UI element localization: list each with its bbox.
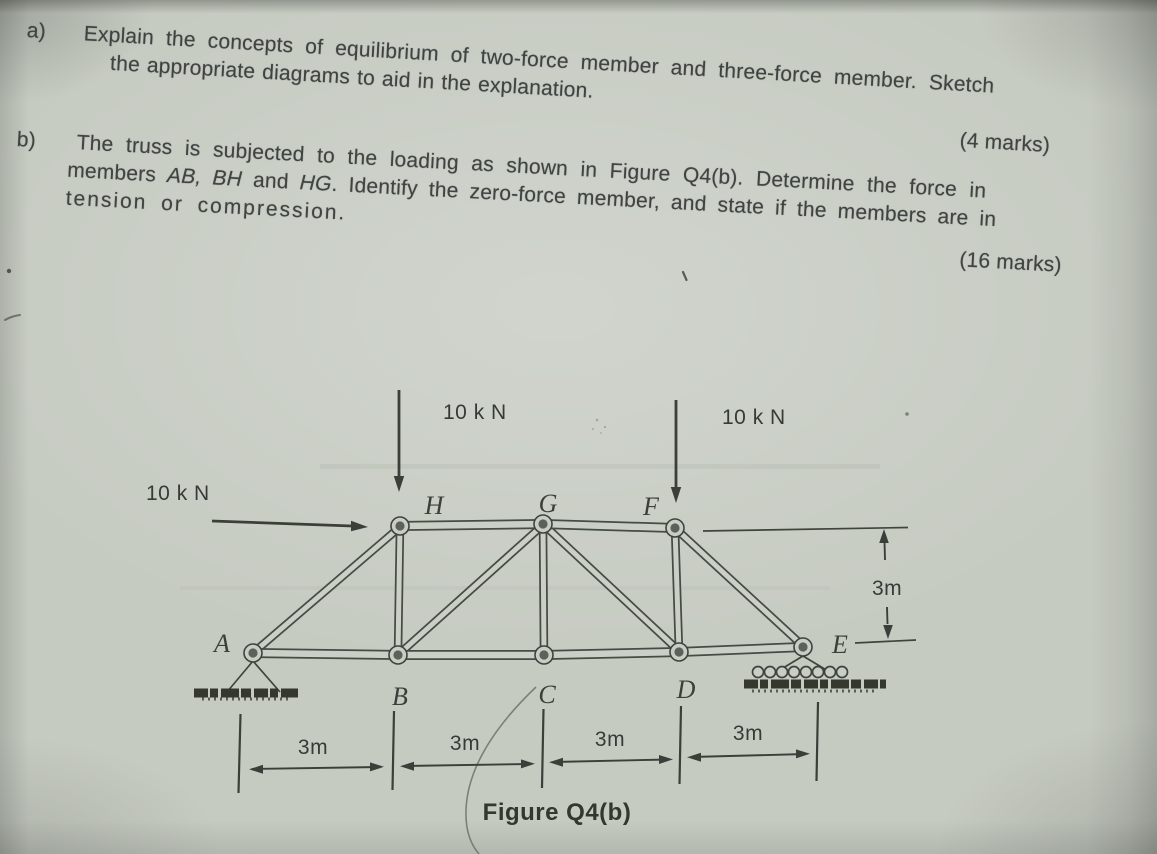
margin-dot bbox=[7, 269, 11, 273]
joint-H bbox=[391, 517, 409, 535]
dim-tick-E bbox=[817, 702, 819, 781]
stray-dot bbox=[905, 412, 909, 416]
bottom-extension-line bbox=[855, 640, 916, 643]
joint-F bbox=[666, 519, 684, 537]
load-arrow-at-F bbox=[671, 400, 681, 503]
node-label-D: D bbox=[676, 675, 696, 704]
node-label-B: B bbox=[392, 682, 408, 711]
roller-circles bbox=[753, 667, 848, 678]
load-label-at-F: 10 k N bbox=[722, 406, 786, 429]
joint-D bbox=[670, 643, 688, 661]
horizontal-load-label: 10 k N bbox=[146, 482, 210, 505]
figure-caption: Figure Q4(b) bbox=[483, 799, 632, 826]
load-arrow-at-H bbox=[394, 390, 404, 492]
margin-dash bbox=[5, 315, 20, 320]
load-label-at-H: 10 k N bbox=[443, 401, 507, 424]
down-arrowhead bbox=[394, 476, 404, 492]
span-dim-label-1: 3m bbox=[298, 736, 328, 759]
down-arrowhead bbox=[671, 487, 681, 503]
dim-tick-B bbox=[393, 711, 395, 790]
down-arrowhead bbox=[883, 625, 893, 639]
top-extension-line bbox=[703, 528, 908, 532]
node-label-F: F bbox=[642, 492, 660, 521]
paper-smudges bbox=[5, 269, 909, 590]
node-label-H: H bbox=[424, 491, 445, 520]
scan-arc bbox=[466, 687, 536, 854]
span-arrow-1 bbox=[249, 762, 384, 773]
span-dim-label-2: 3m bbox=[450, 732, 480, 755]
exam-paper-photo: a) Explain the concepts of equilibrium o… bbox=[0, 0, 1157, 854]
joint-B bbox=[389, 646, 407, 664]
joint-A bbox=[244, 644, 262, 662]
node-label-G: G bbox=[539, 489, 558, 518]
node-label-A: A bbox=[212, 629, 230, 658]
span-dim-label-3: 3m bbox=[595, 728, 625, 751]
span-dimensions: 3m 3m 3m 3m bbox=[239, 702, 819, 793]
node-label-E: E bbox=[831, 630, 848, 659]
span-dim-label-4: 3m bbox=[733, 722, 763, 745]
joint-E bbox=[794, 638, 812, 656]
dim-tick-A bbox=[239, 714, 241, 793]
roller-support-E bbox=[744, 656, 886, 691]
span-arrow-3 bbox=[549, 755, 673, 767]
joint-C bbox=[535, 646, 553, 664]
up-arrowhead bbox=[879, 529, 889, 543]
dim-tick-C bbox=[542, 709, 544, 788]
truss-figure: 10 k N 10 k N 10 k N 3m bbox=[0, 0, 1157, 854]
dim-tick-D bbox=[680, 706, 682, 784]
right-arrowhead bbox=[351, 521, 368, 531]
span-arrow-4 bbox=[687, 749, 810, 761]
node-label-C: C bbox=[538, 680, 556, 709]
horizontal-load-arrow bbox=[212, 521, 368, 531]
stray-apostrophe bbox=[683, 272, 687, 280]
span-arrow-2 bbox=[400, 759, 535, 770]
height-dim-label: 3m bbox=[872, 577, 902, 600]
pin-support-A bbox=[194, 661, 298, 699]
